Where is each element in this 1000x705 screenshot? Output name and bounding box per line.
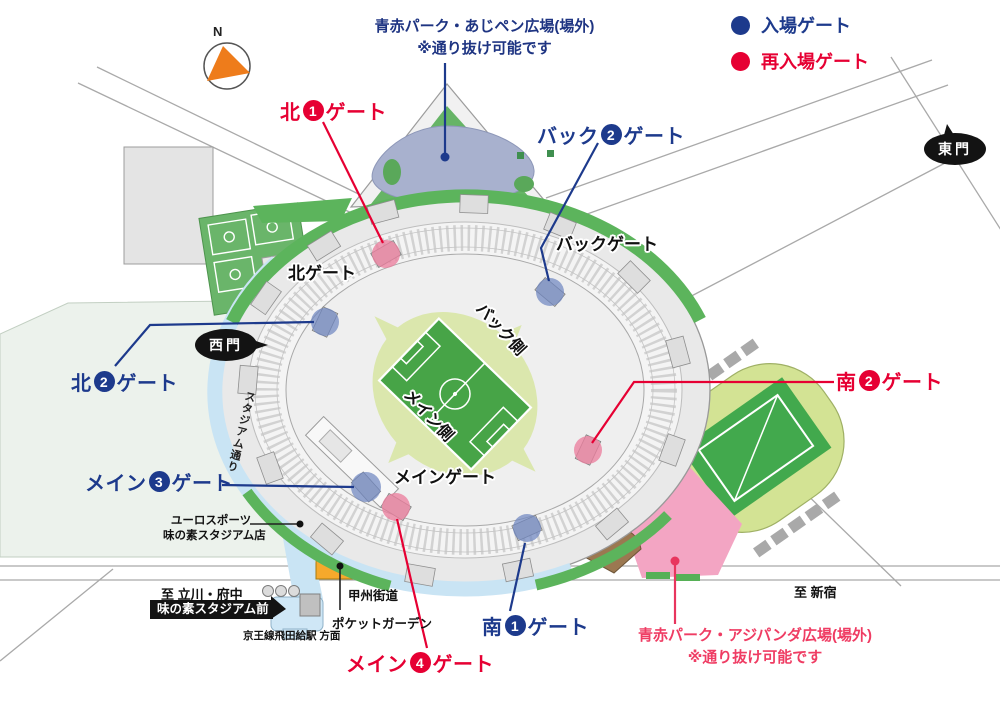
label-east-entrance: 東門 bbox=[924, 133, 986, 165]
label-west-entrance: 西門 bbox=[195, 329, 257, 361]
label-north-gate: 北ゲート bbox=[288, 259, 356, 284]
north-park-note-line2: ※通り抜け可能です bbox=[352, 38, 617, 60]
entry-gate-dot-icon bbox=[731, 16, 750, 35]
label-south1-gate: 南1ゲート bbox=[482, 611, 589, 640]
gate-dot-north-entry bbox=[311, 308, 339, 336]
flag-pointer bbox=[271, 596, 286, 619]
label-south2-gate: 南2ゲート bbox=[836, 366, 943, 395]
south-park-note-line1: 青赤パーク・アジパンダ広場(場外) bbox=[630, 625, 880, 647]
stadium-gate-map: N 青赤パーク・あじペン広場(場外) ※通り抜け可能です 入場ゲート 再入場ゲー… bbox=[0, 0, 1000, 705]
pocket-garden-dot bbox=[337, 563, 344, 570]
gate-dot-south1-entry bbox=[513, 514, 541, 542]
eurosport-line2: 味の素スタジアム店 bbox=[163, 529, 259, 544]
plaza-green1 bbox=[646, 572, 670, 579]
gate-number-badge: 2 bbox=[601, 124, 622, 145]
gate-name: バック bbox=[537, 120, 599, 149]
legend-entry-row: 入場ゲート bbox=[731, 12, 869, 38]
gate-dot-main3-entry bbox=[351, 472, 381, 502]
gate-dot-main4-reentry bbox=[382, 493, 410, 521]
north-park-dot bbox=[441, 153, 450, 162]
gate-dot-north1-reentry bbox=[372, 240, 400, 268]
label-keio-station: 京王線飛田給駅 方面 bbox=[243, 628, 340, 643]
label-north1-gate: 北1ゲート bbox=[280, 96, 387, 125]
gate-number-badge: 1 bbox=[303, 100, 324, 121]
label-koshu-kaido: 甲州街道 bbox=[348, 585, 398, 604]
gate-number-badge: 3 bbox=[149, 471, 170, 492]
north-park-note: 青赤パーク・あじペン広場(場外) ※通り抜け可能です bbox=[352, 16, 617, 60]
label-eurosport-shop: ユーロスポーツ 味の素スタジアム店 bbox=[163, 514, 259, 544]
label-back2-gate: バック2ゲート bbox=[537, 120, 685, 149]
label-main-gate: メインゲート bbox=[394, 463, 496, 488]
gate-name: メイン bbox=[346, 648, 408, 677]
gate-name: 南 bbox=[836, 366, 857, 395]
gate-name: 南 bbox=[482, 611, 503, 640]
compass-north-label: N bbox=[213, 24, 222, 39]
gate-number-badge: 4 bbox=[410, 652, 431, 673]
gate-suffix: ゲート bbox=[528, 611, 590, 640]
eurosport-line1: ユーロスポーツ bbox=[163, 514, 259, 529]
south-park-note-line2: ※通り抜け可能です bbox=[630, 647, 880, 669]
reentry-gate-dot-icon bbox=[731, 52, 750, 71]
gate-number-badge: 1 bbox=[505, 615, 526, 636]
gate-name: 北 bbox=[280, 96, 301, 125]
gate-suffix: ゲート bbox=[326, 96, 388, 125]
gate-name: メイン bbox=[85, 467, 147, 496]
label-pocket-garden: ポケットガーデン bbox=[332, 613, 432, 632]
gate-suffix: ゲート bbox=[882, 366, 944, 395]
shop-dot bbox=[297, 521, 304, 528]
legend-reentry-label: 再入場ゲート bbox=[761, 48, 869, 74]
overpass bbox=[300, 594, 320, 616]
label-main3-gate: メイン3ゲート bbox=[85, 467, 233, 496]
label-north2-gate: 北2ゲート bbox=[71, 367, 178, 396]
label-back-gate: バックゲート bbox=[556, 230, 658, 255]
legend-reentry-row: 再入場ゲート bbox=[731, 48, 869, 74]
bus-rotary bbox=[263, 586, 300, 597]
compass-icon bbox=[204, 43, 250, 89]
plaza-green2 bbox=[676, 574, 700, 581]
gate-dot-back-entry bbox=[536, 278, 564, 306]
gate-number-badge: 2 bbox=[94, 371, 115, 392]
gate-suffix: ゲート bbox=[433, 648, 495, 677]
north-park-note-line1: 青赤パーク・あじペン広場(場外) bbox=[352, 16, 617, 38]
south-park-dot bbox=[671, 557, 680, 566]
gate-suffix: ゲート bbox=[117, 367, 179, 396]
label-to-shinjuku: 至 新宿 bbox=[794, 582, 837, 601]
gate-dot-south2-reentry bbox=[574, 436, 602, 464]
label-main4-gate: メイン4ゲート bbox=[346, 648, 494, 677]
gate-suffix: ゲート bbox=[624, 120, 686, 149]
gate-name: 北 bbox=[71, 367, 92, 396]
south-park-note: 青赤パーク・アジパンダ広場(場外) ※通り抜け可能です bbox=[630, 625, 880, 669]
bus-stop-label: 味の素スタジアム前 bbox=[157, 602, 269, 616]
legend-entry-label: 入場ゲート bbox=[761, 12, 851, 38]
gate-number-badge: 2 bbox=[859, 370, 880, 391]
gate-suffix: ゲート bbox=[172, 467, 234, 496]
building-block bbox=[124, 147, 213, 264]
bus-stop-flag: 味の素スタジアム前 bbox=[150, 600, 273, 619]
legend: 入場ゲート 再入場ゲート bbox=[731, 12, 869, 74]
